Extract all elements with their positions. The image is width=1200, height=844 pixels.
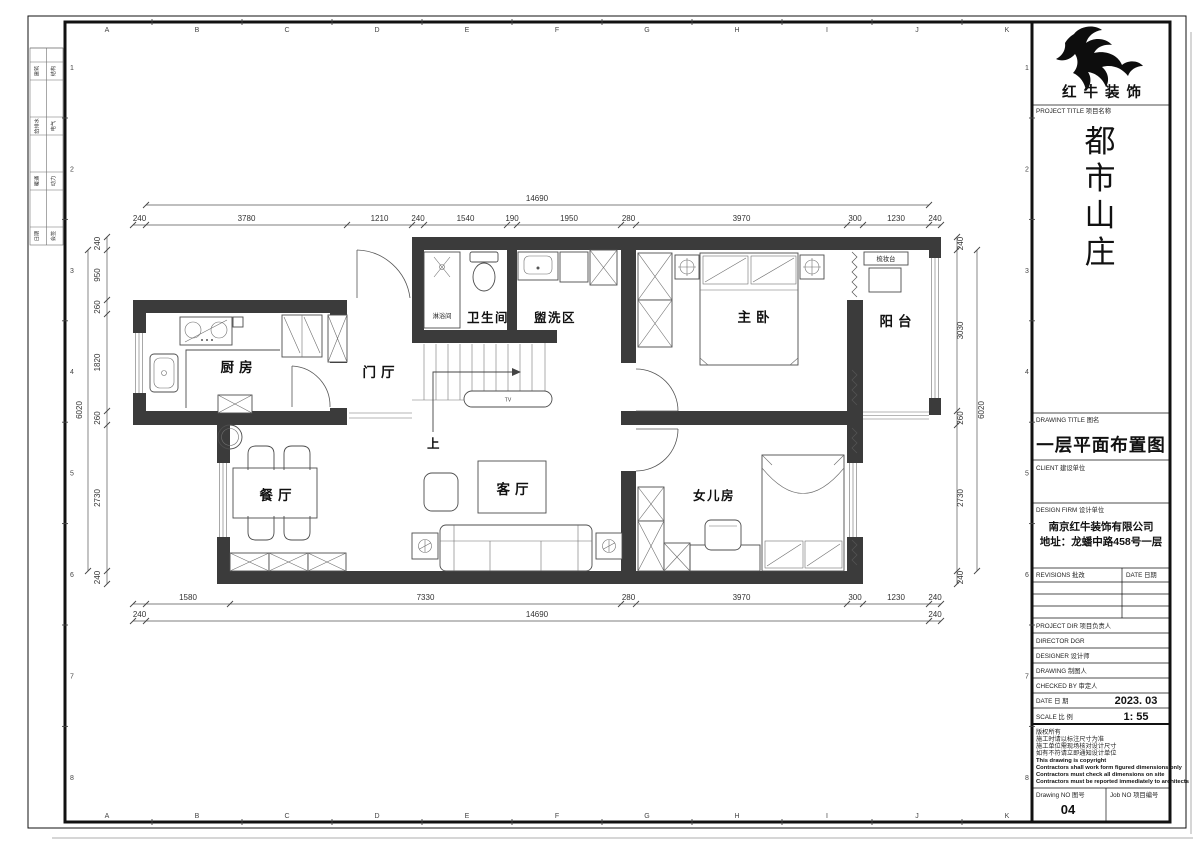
svg-text:市: 市 xyxy=(1085,161,1116,196)
svg-text:4: 4 xyxy=(1025,369,1029,376)
daughter-bed xyxy=(762,455,844,571)
svg-text:240: 240 xyxy=(133,214,147,223)
svg-text:B: B xyxy=(195,27,200,34)
svg-text:5: 5 xyxy=(1025,471,1029,478)
nightstand-lamp-icon xyxy=(800,255,824,279)
svg-text:2: 2 xyxy=(70,166,74,173)
note-line: 施工时请以标注尺寸为准 xyxy=(1036,735,1104,743)
room-label-master-bedroom: 主卧 xyxy=(738,309,775,325)
project-title-vertical: 都市山庄 xyxy=(1085,124,1116,270)
svg-text:J: J xyxy=(915,813,919,820)
svg-text:日期: 日期 xyxy=(34,231,41,241)
side-table-lamp-icon xyxy=(596,533,622,559)
svg-text:D: D xyxy=(374,27,379,34)
svg-text:B: B xyxy=(195,813,200,820)
balcony-window-bottom xyxy=(863,412,929,419)
svg-text:7330: 7330 xyxy=(417,593,435,602)
svg-text:1950: 1950 xyxy=(560,214,578,223)
svg-text:I: I xyxy=(826,27,828,34)
floor-plan: 厨房 门厅 卫生间 盥洗区 主卧 阳台 餐厅 客厅 女儿房 淋浴间 梳妆台 上 … xyxy=(75,194,986,624)
svg-text:K: K xyxy=(1005,813,1010,820)
svg-text:1580: 1580 xyxy=(179,593,197,602)
svg-text:山: 山 xyxy=(1085,198,1116,233)
fridge-icon xyxy=(282,315,322,357)
daughter-window xyxy=(850,463,857,537)
svg-text:260: 260 xyxy=(956,411,965,425)
room-label-balcony: 阳台 xyxy=(880,313,917,329)
svg-text:1820: 1820 xyxy=(93,353,102,371)
svg-text:1: 1 xyxy=(1025,65,1029,72)
bull-logo-icon xyxy=(1056,27,1143,91)
svg-text:G: G xyxy=(644,27,649,34)
svg-text:240: 240 xyxy=(411,214,425,223)
design-firm-address: 地址：龙蟠中路458号一层 xyxy=(1040,535,1163,548)
bathroom-furniture xyxy=(424,250,617,328)
svg-text:280: 280 xyxy=(622,593,636,602)
sideboard-cabinets xyxy=(230,553,346,571)
svg-text:950: 950 xyxy=(93,268,102,282)
svg-text:240: 240 xyxy=(93,236,102,250)
kitchen-hood xyxy=(233,317,243,327)
svg-text:C: C xyxy=(284,27,289,34)
design-firm-label: DESIGN FIRM 设计单位 xyxy=(1036,505,1105,514)
wash-basin xyxy=(518,252,558,280)
svg-text:190: 190 xyxy=(505,214,519,223)
coffee-table xyxy=(424,473,458,511)
svg-text:7: 7 xyxy=(70,673,74,680)
svg-text:280: 280 xyxy=(622,214,636,223)
svg-text:3: 3 xyxy=(70,268,74,275)
foyer-threshold xyxy=(349,413,412,418)
scale-value: 1: 55 xyxy=(1123,711,1148,723)
svg-text:A: A xyxy=(105,27,110,34)
dressing-stool xyxy=(869,268,901,292)
svg-text:会签: 会签 xyxy=(49,231,57,241)
svg-text:8: 8 xyxy=(70,775,74,782)
signature-strip: 建筑结构给排水电气暖通动力日期会签 xyxy=(30,48,63,245)
svg-text:240: 240 xyxy=(93,570,102,584)
master-bedroom-door xyxy=(636,369,678,411)
svg-text:D: D xyxy=(374,813,379,820)
svg-text:2730: 2730 xyxy=(956,489,965,507)
svg-text:240: 240 xyxy=(956,570,965,584)
svg-text:240: 240 xyxy=(928,593,942,602)
project-dir-label: PROJECT DIR 项目负责人 xyxy=(1036,621,1112,630)
label-dressing-table: 梳妆台 xyxy=(877,254,896,263)
svg-text:庄: 庄 xyxy=(1085,235,1116,270)
kitchen-sink xyxy=(150,354,178,392)
svg-text:G: G xyxy=(644,813,649,820)
svg-text:260: 260 xyxy=(93,411,102,425)
svg-text:J: J xyxy=(915,27,919,34)
svg-text:6020: 6020 xyxy=(75,401,84,419)
client-label: CLIENT 建设单位 xyxy=(1036,463,1086,472)
svg-text:6: 6 xyxy=(1025,572,1029,579)
revisions-label: REVISIONS 批改 xyxy=(1036,570,1085,579)
project-title-label: PROJECT TITLE 项目名称 xyxy=(1036,106,1112,115)
note-line: 施工单位需现场核对设计尺寸 xyxy=(1036,742,1116,750)
drawing-no-value: 04 xyxy=(1061,802,1076,817)
svg-text:电气: 电气 xyxy=(49,121,57,131)
room-label-bathroom: 卫生间 xyxy=(467,310,509,325)
svg-text:F: F xyxy=(555,813,559,820)
nightstand-lamp-icon xyxy=(675,255,699,279)
dining-window xyxy=(220,463,227,537)
svg-text:1230: 1230 xyxy=(887,593,905,602)
note-line: Contractors shall work form figured dime… xyxy=(1036,765,1183,771)
kitchen-window xyxy=(136,333,143,393)
svg-text:1540: 1540 xyxy=(457,214,475,223)
svg-text:E: E xyxy=(465,27,470,34)
svg-text:2: 2 xyxy=(1025,166,1029,173)
design-firm-name: 南京红牛装饰有限公司 xyxy=(1049,520,1154,533)
label-stairs-up: 上 xyxy=(427,436,441,451)
svg-text:240: 240 xyxy=(928,610,942,619)
svg-text:3780: 3780 xyxy=(238,214,256,223)
room-label-dining: 餐厅 xyxy=(259,487,297,503)
job-no-label: Job NO 项目编号 xyxy=(1110,790,1158,799)
svg-text:14690: 14690 xyxy=(526,194,549,203)
svg-text:1: 1 xyxy=(70,65,74,72)
stove-icon xyxy=(180,317,232,345)
balcony-window-right xyxy=(932,258,939,398)
desk-chair xyxy=(705,520,741,550)
svg-text:3: 3 xyxy=(1025,268,1029,275)
svg-text:动力: 动力 xyxy=(49,176,57,186)
svg-text:C: C xyxy=(284,813,289,820)
revisions-date-label: DATE 日期 xyxy=(1126,571,1157,579)
svg-text:E: E xyxy=(465,813,470,820)
svg-text:都: 都 xyxy=(1085,124,1116,159)
svg-text:240: 240 xyxy=(133,610,147,619)
master-bedroom-furniture xyxy=(638,253,824,365)
wash-cabinet xyxy=(560,252,588,282)
master-bed xyxy=(700,253,798,365)
daughter-room-furniture xyxy=(638,455,844,571)
notes-block: 版权所有 施工时请以标注尺寸为准 施工单位需现场核对设计尺寸 如有不符请立即通知… xyxy=(1036,728,1189,785)
label-tv: TV xyxy=(505,398,512,404)
svg-text:1210: 1210 xyxy=(371,214,389,223)
svg-text:4: 4 xyxy=(70,369,74,376)
living-room-furniture xyxy=(412,391,622,571)
svg-text:暖通: 暖通 xyxy=(33,175,41,186)
svg-text:K: K xyxy=(1005,27,1010,34)
svg-text:H: H xyxy=(734,813,739,820)
date-label: DATE 日 期 xyxy=(1036,697,1068,705)
svg-text:给排水: 给排水 xyxy=(33,117,41,133)
svg-text:结构: 结构 xyxy=(49,66,57,76)
svg-text:300: 300 xyxy=(848,593,862,602)
svg-text:3030: 3030 xyxy=(956,321,965,339)
svg-text:7: 7 xyxy=(1025,673,1029,680)
svg-text:3970: 3970 xyxy=(733,593,751,602)
note-line: This drawing is copyright xyxy=(1036,758,1106,764)
toilet-icon xyxy=(470,252,498,291)
svg-text:6020: 6020 xyxy=(977,401,986,419)
stairs xyxy=(412,343,545,432)
entrance-door xyxy=(357,250,410,298)
drawing-title-label: DRAWING TITLE 图名 xyxy=(1036,415,1099,424)
svg-text:F: F xyxy=(555,27,559,34)
side-table-lamp-icon xyxy=(412,533,438,559)
note-line: 版权所有 xyxy=(1036,728,1061,736)
logo-text: 红牛装饰 xyxy=(1062,83,1148,101)
svg-text:6: 6 xyxy=(70,572,74,579)
director-label: DIRECTOR DGR xyxy=(1036,638,1085,645)
svg-text:300: 300 xyxy=(848,214,862,223)
drawing-person-label: DRAWING 制图人 xyxy=(1036,666,1088,675)
room-label-foyer: 门厅 xyxy=(363,364,400,380)
svg-text:建筑: 建筑 xyxy=(33,65,41,76)
svg-text:3970: 3970 xyxy=(733,214,751,223)
room-label-washing: 盥洗区 xyxy=(534,310,576,325)
svg-text:14690: 14690 xyxy=(526,610,549,619)
sofa xyxy=(440,525,592,571)
svg-text:A: A xyxy=(105,813,110,820)
svg-text:240: 240 xyxy=(928,214,942,223)
note-line: Contractors must check all dimensions on… xyxy=(1036,772,1165,778)
company-logo: 红牛装饰 xyxy=(1056,27,1148,101)
kitchen-door xyxy=(292,366,330,407)
title-block: 红牛装饰 PROJECT TITLE 项目名称 都市山庄 DRAWING TIT… xyxy=(1032,27,1189,822)
svg-text:2730: 2730 xyxy=(93,489,102,507)
room-label-kitchen: 厨房 xyxy=(221,359,258,375)
room-label-living: 客厅 xyxy=(496,481,534,497)
note-line: 如有不符请立即通知设计单位 xyxy=(1036,749,1116,757)
drawing-title: 一层平面布置图 xyxy=(1036,435,1166,455)
svg-text:H: H xyxy=(734,27,739,34)
daughter-room-door xyxy=(636,429,678,471)
label-shower: 淋浴间 xyxy=(433,311,452,320)
date-value: 2023. 03 xyxy=(1115,695,1158,707)
drawing-no-label: Drawing NO 图号 xyxy=(1036,791,1085,799)
scale-label: SCALE 比 例 xyxy=(1036,712,1073,721)
svg-text:8: 8 xyxy=(1025,775,1029,782)
designer-label: DESIGNER 设计师 xyxy=(1036,651,1090,660)
room-label-daughter-room: 女儿房 xyxy=(693,488,735,503)
drawing-sheet: 建筑结构给排水电气暖通动力日期会签 AABBCCDDEEFFGGHHIIJJKK… xyxy=(0,0,1200,844)
svg-text:1230: 1230 xyxy=(887,214,905,223)
note-line: Contractors must be reported immediately… xyxy=(1036,779,1189,785)
svg-text:I: I xyxy=(826,813,828,820)
svg-text:5: 5 xyxy=(70,471,74,478)
svg-text:260: 260 xyxy=(93,300,102,314)
svg-text:240: 240 xyxy=(956,236,965,250)
checked-by-label: CHECKED BY 审定人 xyxy=(1036,681,1098,690)
